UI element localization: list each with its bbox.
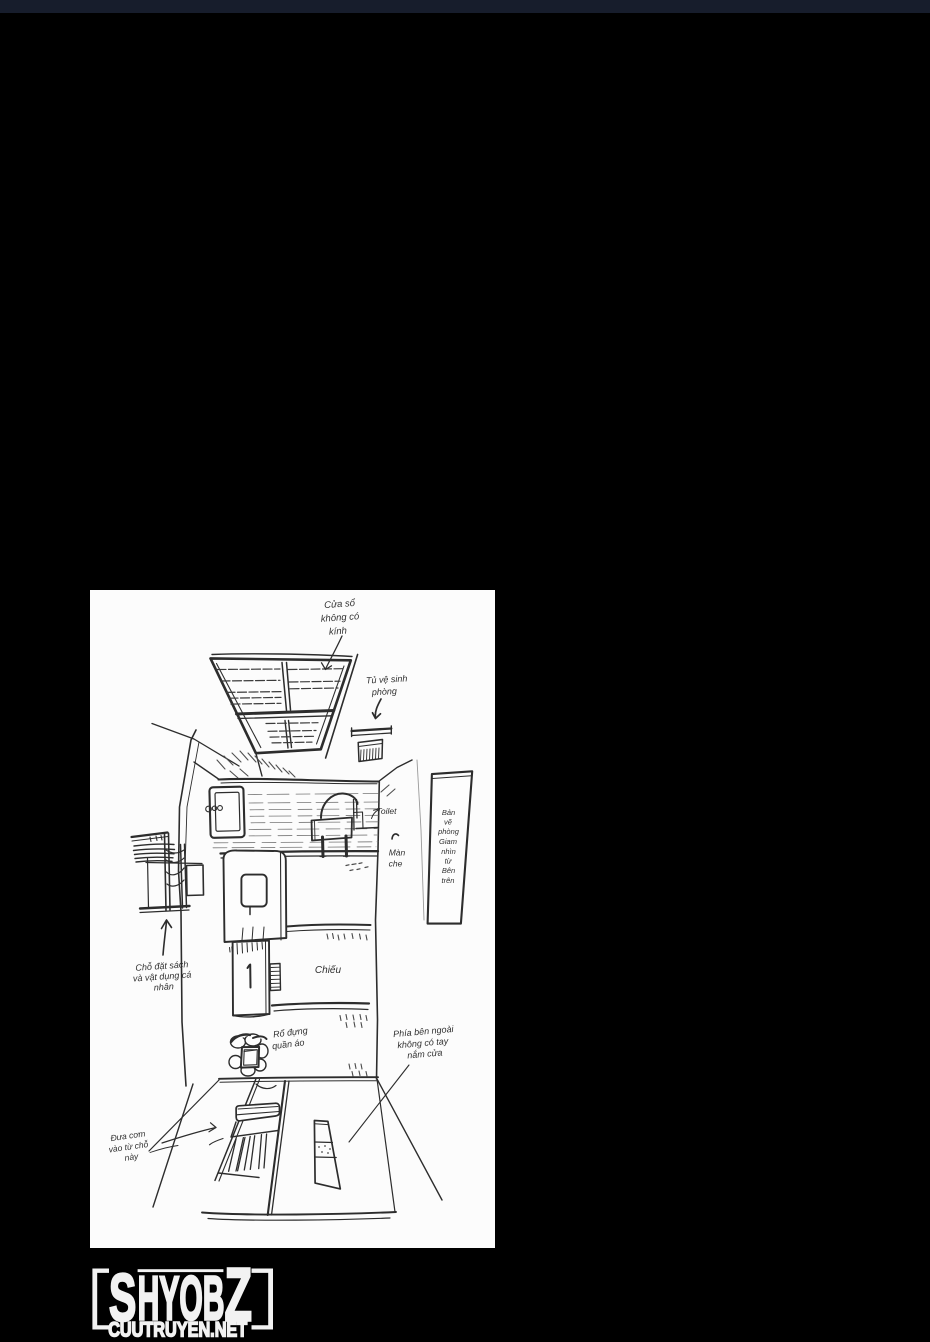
svg-text:này: này: [124, 1151, 140, 1163]
svg-text:phòng: phòng: [371, 686, 398, 697]
svg-text:Toilet: Toilet: [376, 806, 397, 816]
svg-text:không có: không có: [320, 611, 360, 625]
svg-text:Bên: Bên: [442, 866, 455, 875]
svg-text:quần áo: quần áo: [271, 1037, 305, 1051]
svg-text:Tủ vệ sinh: Tủ vệ sinh: [366, 673, 408, 685]
svg-text:nhìn: nhìn: [441, 847, 456, 856]
svg-text:phòng: phòng: [437, 827, 460, 836]
svg-text:che: che: [389, 859, 403, 869]
svg-text:kính: kính: [329, 626, 348, 638]
svg-text:CUUTRUYEN.NET: CUUTRUYEN.NET: [108, 1319, 247, 1342]
svg-text:Chiếu: Chiếu: [315, 964, 342, 976]
svg-text:nhân: nhân: [153, 981, 174, 992]
svg-text:Màn: Màn: [389, 848, 406, 858]
svg-text:Bản: Bản: [442, 808, 455, 817]
svg-text:trên: trên: [442, 876, 455, 885]
svg-text:Cửa sổ: Cửa sổ: [324, 598, 356, 611]
svg-text:nắm cửa: nắm cửa: [407, 1047, 443, 1060]
svg-text:Giam: Giam: [439, 837, 457, 846]
svg-text:vẽ: vẽ: [444, 818, 452, 827]
